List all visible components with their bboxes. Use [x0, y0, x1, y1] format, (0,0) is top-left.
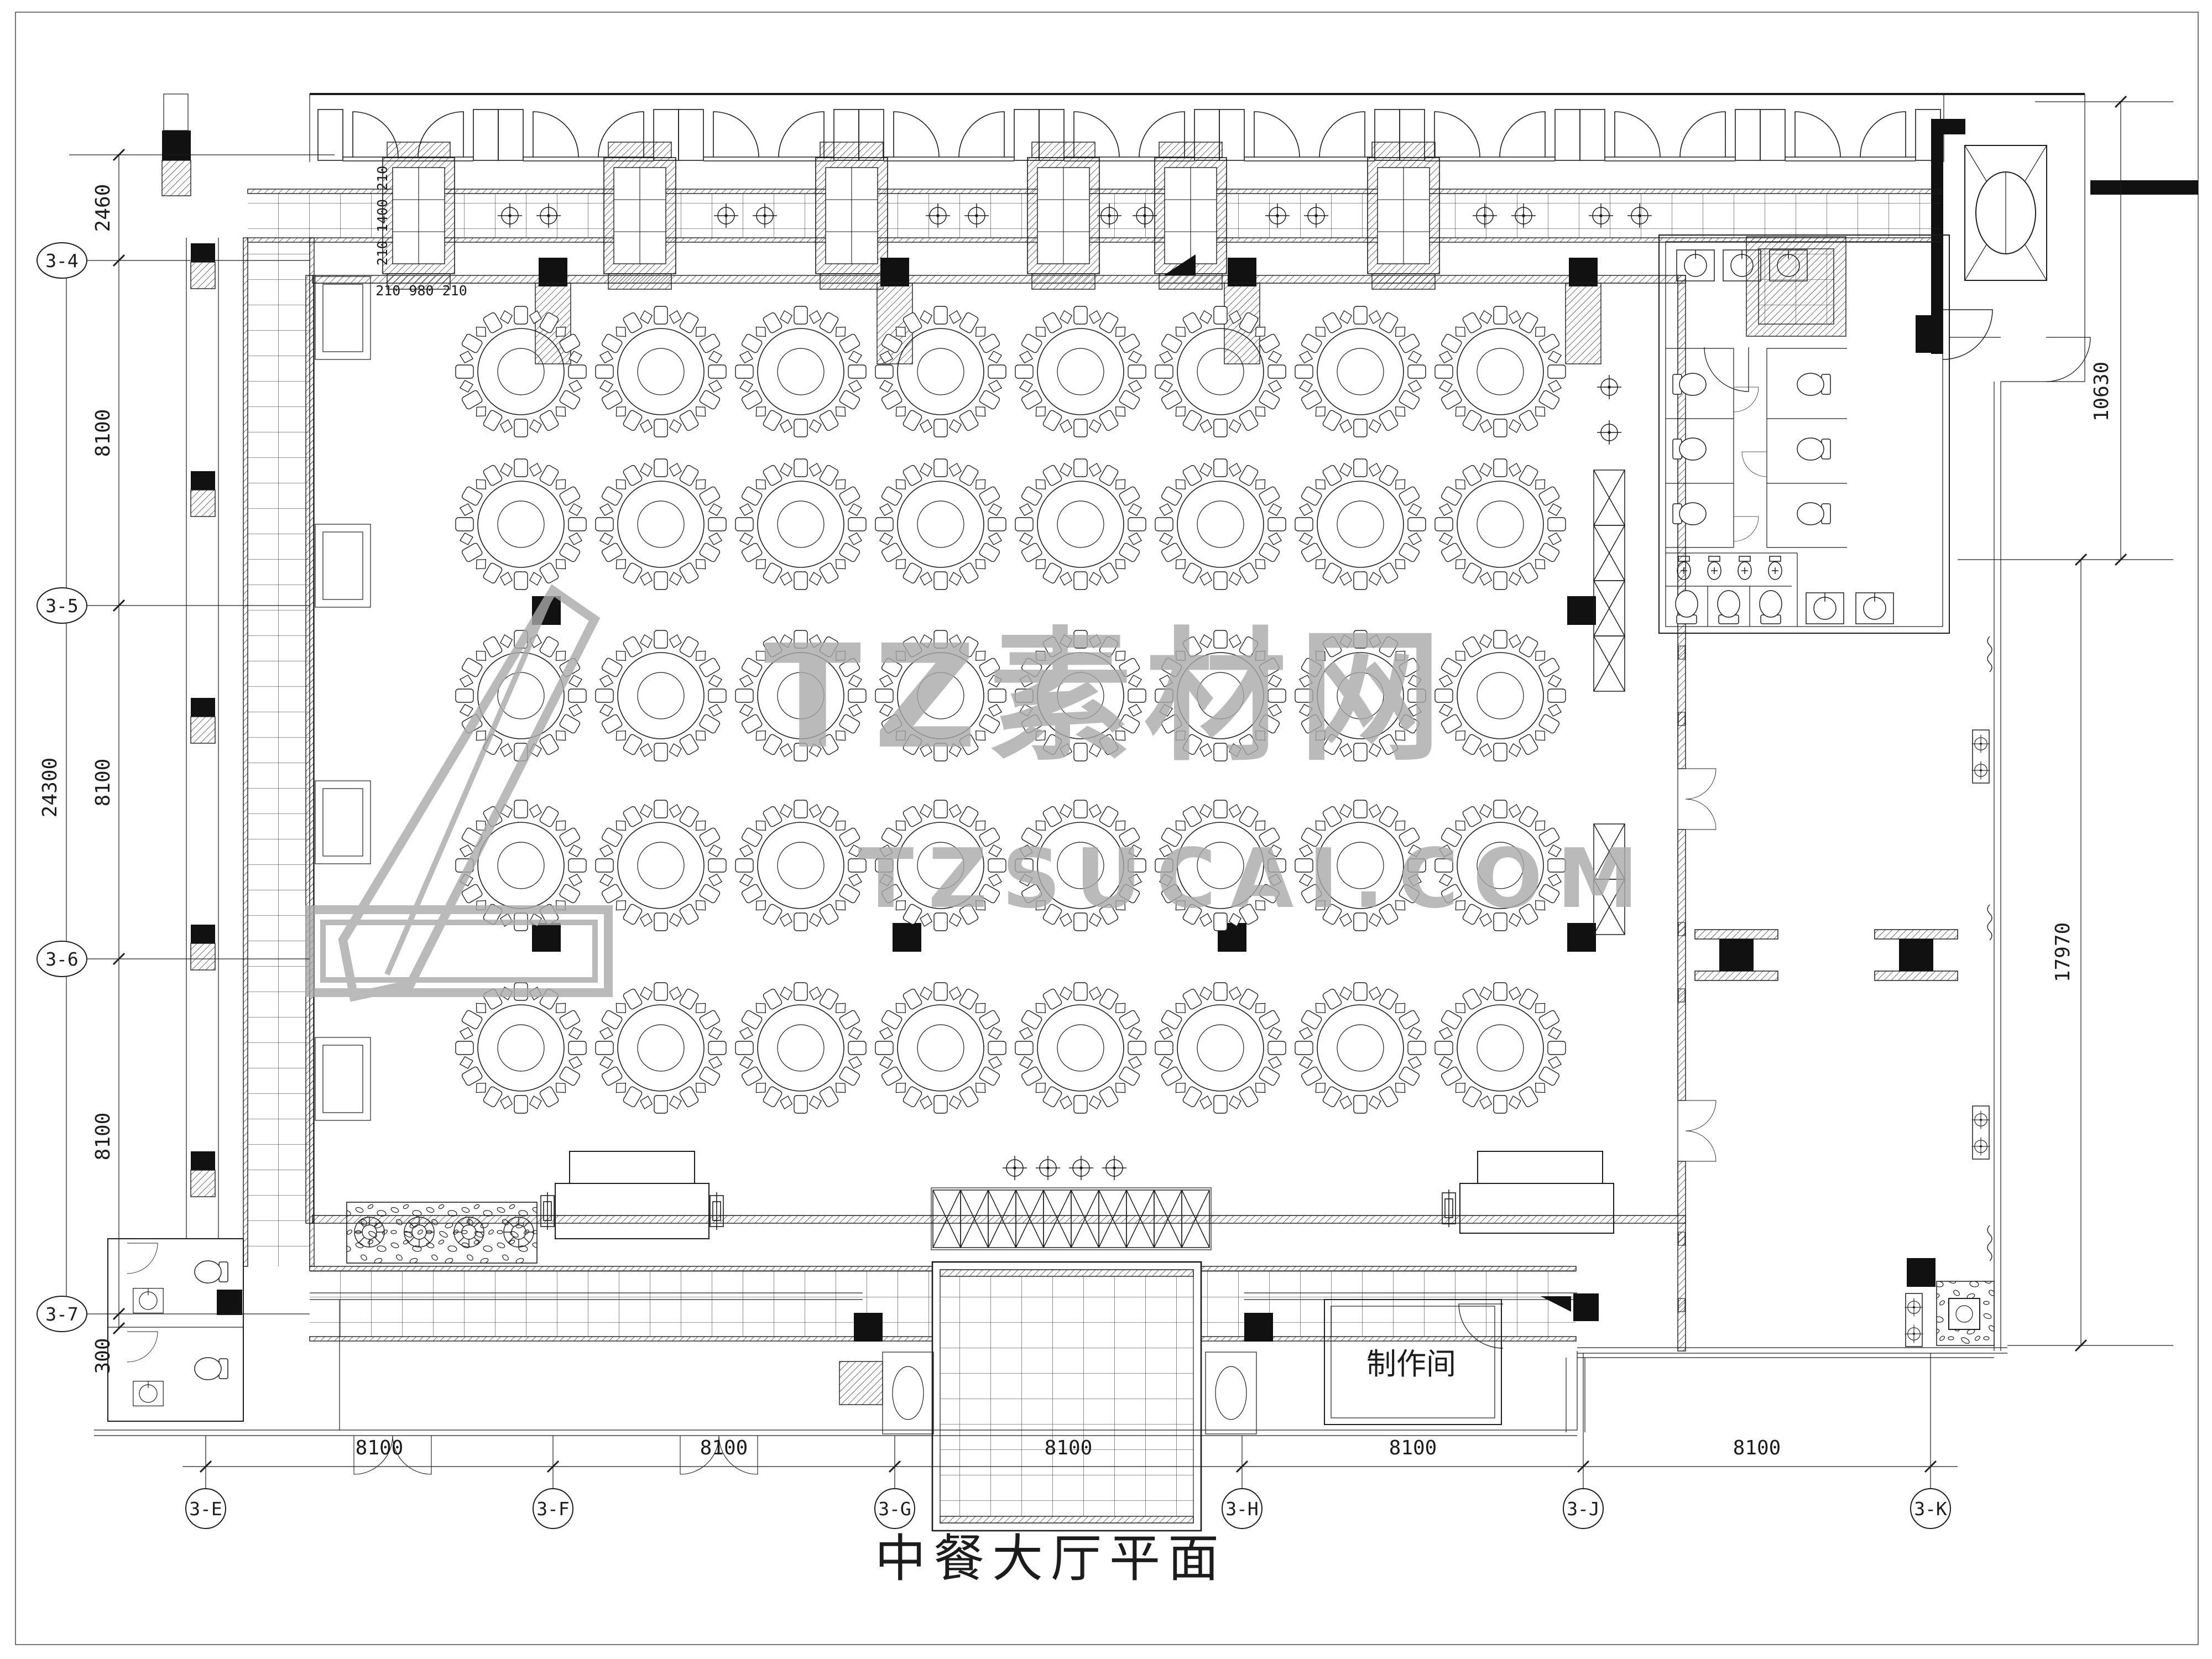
- dim-label: 10630: [2090, 362, 2113, 421]
- shaft-column: [1746, 237, 1846, 336]
- grid-bubble: 3-H: [1225, 1498, 1259, 1520]
- grid-bubble: 3-F: [536, 1498, 570, 1520]
- watermark-brand: TZ素材网: [764, 614, 1453, 780]
- production-room-label: 制作间: [1366, 1347, 1456, 1381]
- dim-label: 8100: [92, 759, 114, 807]
- dim-label: 8100: [92, 1113, 114, 1161]
- dim-label: 8100: [1733, 1437, 1781, 1459]
- dim-label-detail: 210 980 210: [375, 283, 467, 299]
- shear-wall: [2090, 180, 2198, 195]
- floor-plan-svg: 制作间 TZ素材网 TZSUCAI.COM 2460 8100 8100 810…: [0, 0, 2212, 1659]
- grid-bubble: 3-7: [45, 1303, 79, 1325]
- hall-west-wall: [306, 275, 314, 1223]
- dim-label: 300: [92, 1338, 114, 1374]
- drawing-sheet: 制作间 TZ素材网 TZSUCAI.COM 2460 8100 8100 810…: [0, 0, 2212, 1659]
- dim-label: 17970: [2052, 922, 2074, 982]
- hall-north-wall: [312, 275, 1686, 283]
- flower-bed: [347, 1202, 537, 1263]
- dim-label: 2460: [92, 184, 114, 232]
- watermark-site: TZSUCAI.COM: [858, 831, 1652, 926]
- dim-label: 8100: [700, 1437, 748, 1459]
- dim-label-overall: 24300: [39, 758, 61, 817]
- grid-bubble: 3-E: [189, 1498, 222, 1520]
- grid-bubble: 3-6: [45, 948, 79, 970]
- grid-bubble: 3-G: [878, 1498, 911, 1520]
- grid-bubble: 3-J: [1567, 1498, 1600, 1520]
- grid-bubble: 3-K: [1914, 1498, 1947, 1520]
- grid-bubble: 3-5: [45, 595, 79, 617]
- dim-label: 8100: [1389, 1437, 1437, 1459]
- dim-label-detail: 210 1400 210: [374, 166, 390, 266]
- dim-label: 8100: [92, 409, 114, 457]
- left-corridor: [243, 238, 314, 1266]
- entrance-vestibule: [932, 1262, 1201, 1531]
- drawing-title: 中餐大厅平面: [875, 1529, 1227, 1588]
- dim-label: 8100: [356, 1437, 404, 1459]
- dim-label: 8100: [1045, 1437, 1093, 1459]
- grid-bubble: 3-4: [45, 250, 79, 272]
